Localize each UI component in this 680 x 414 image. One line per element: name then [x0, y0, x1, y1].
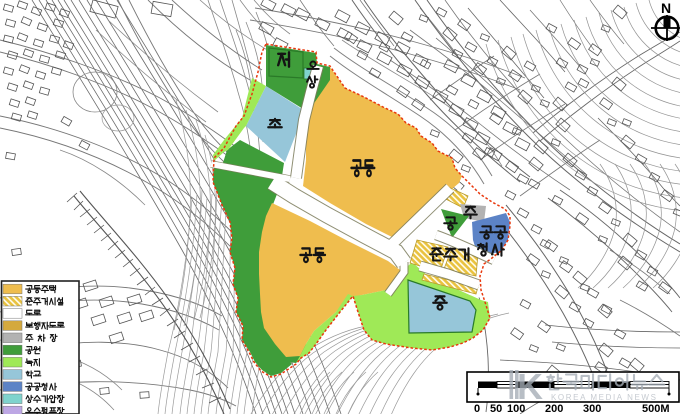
svg-text:KOREA MEDIA NEWS: KOREA MEDIA NEWS — [551, 393, 658, 402]
svg-text:50: 50 — [490, 403, 502, 414]
svg-text:200: 200 — [545, 403, 563, 414]
svg-text:500M: 500M — [642, 403, 670, 414]
svg-text:K: K — [517, 366, 543, 407]
svg-text:0: 0 — [474, 403, 480, 414]
svg-text:300: 300 — [583, 403, 601, 414]
svg-text:N: N — [661, 0, 671, 16]
